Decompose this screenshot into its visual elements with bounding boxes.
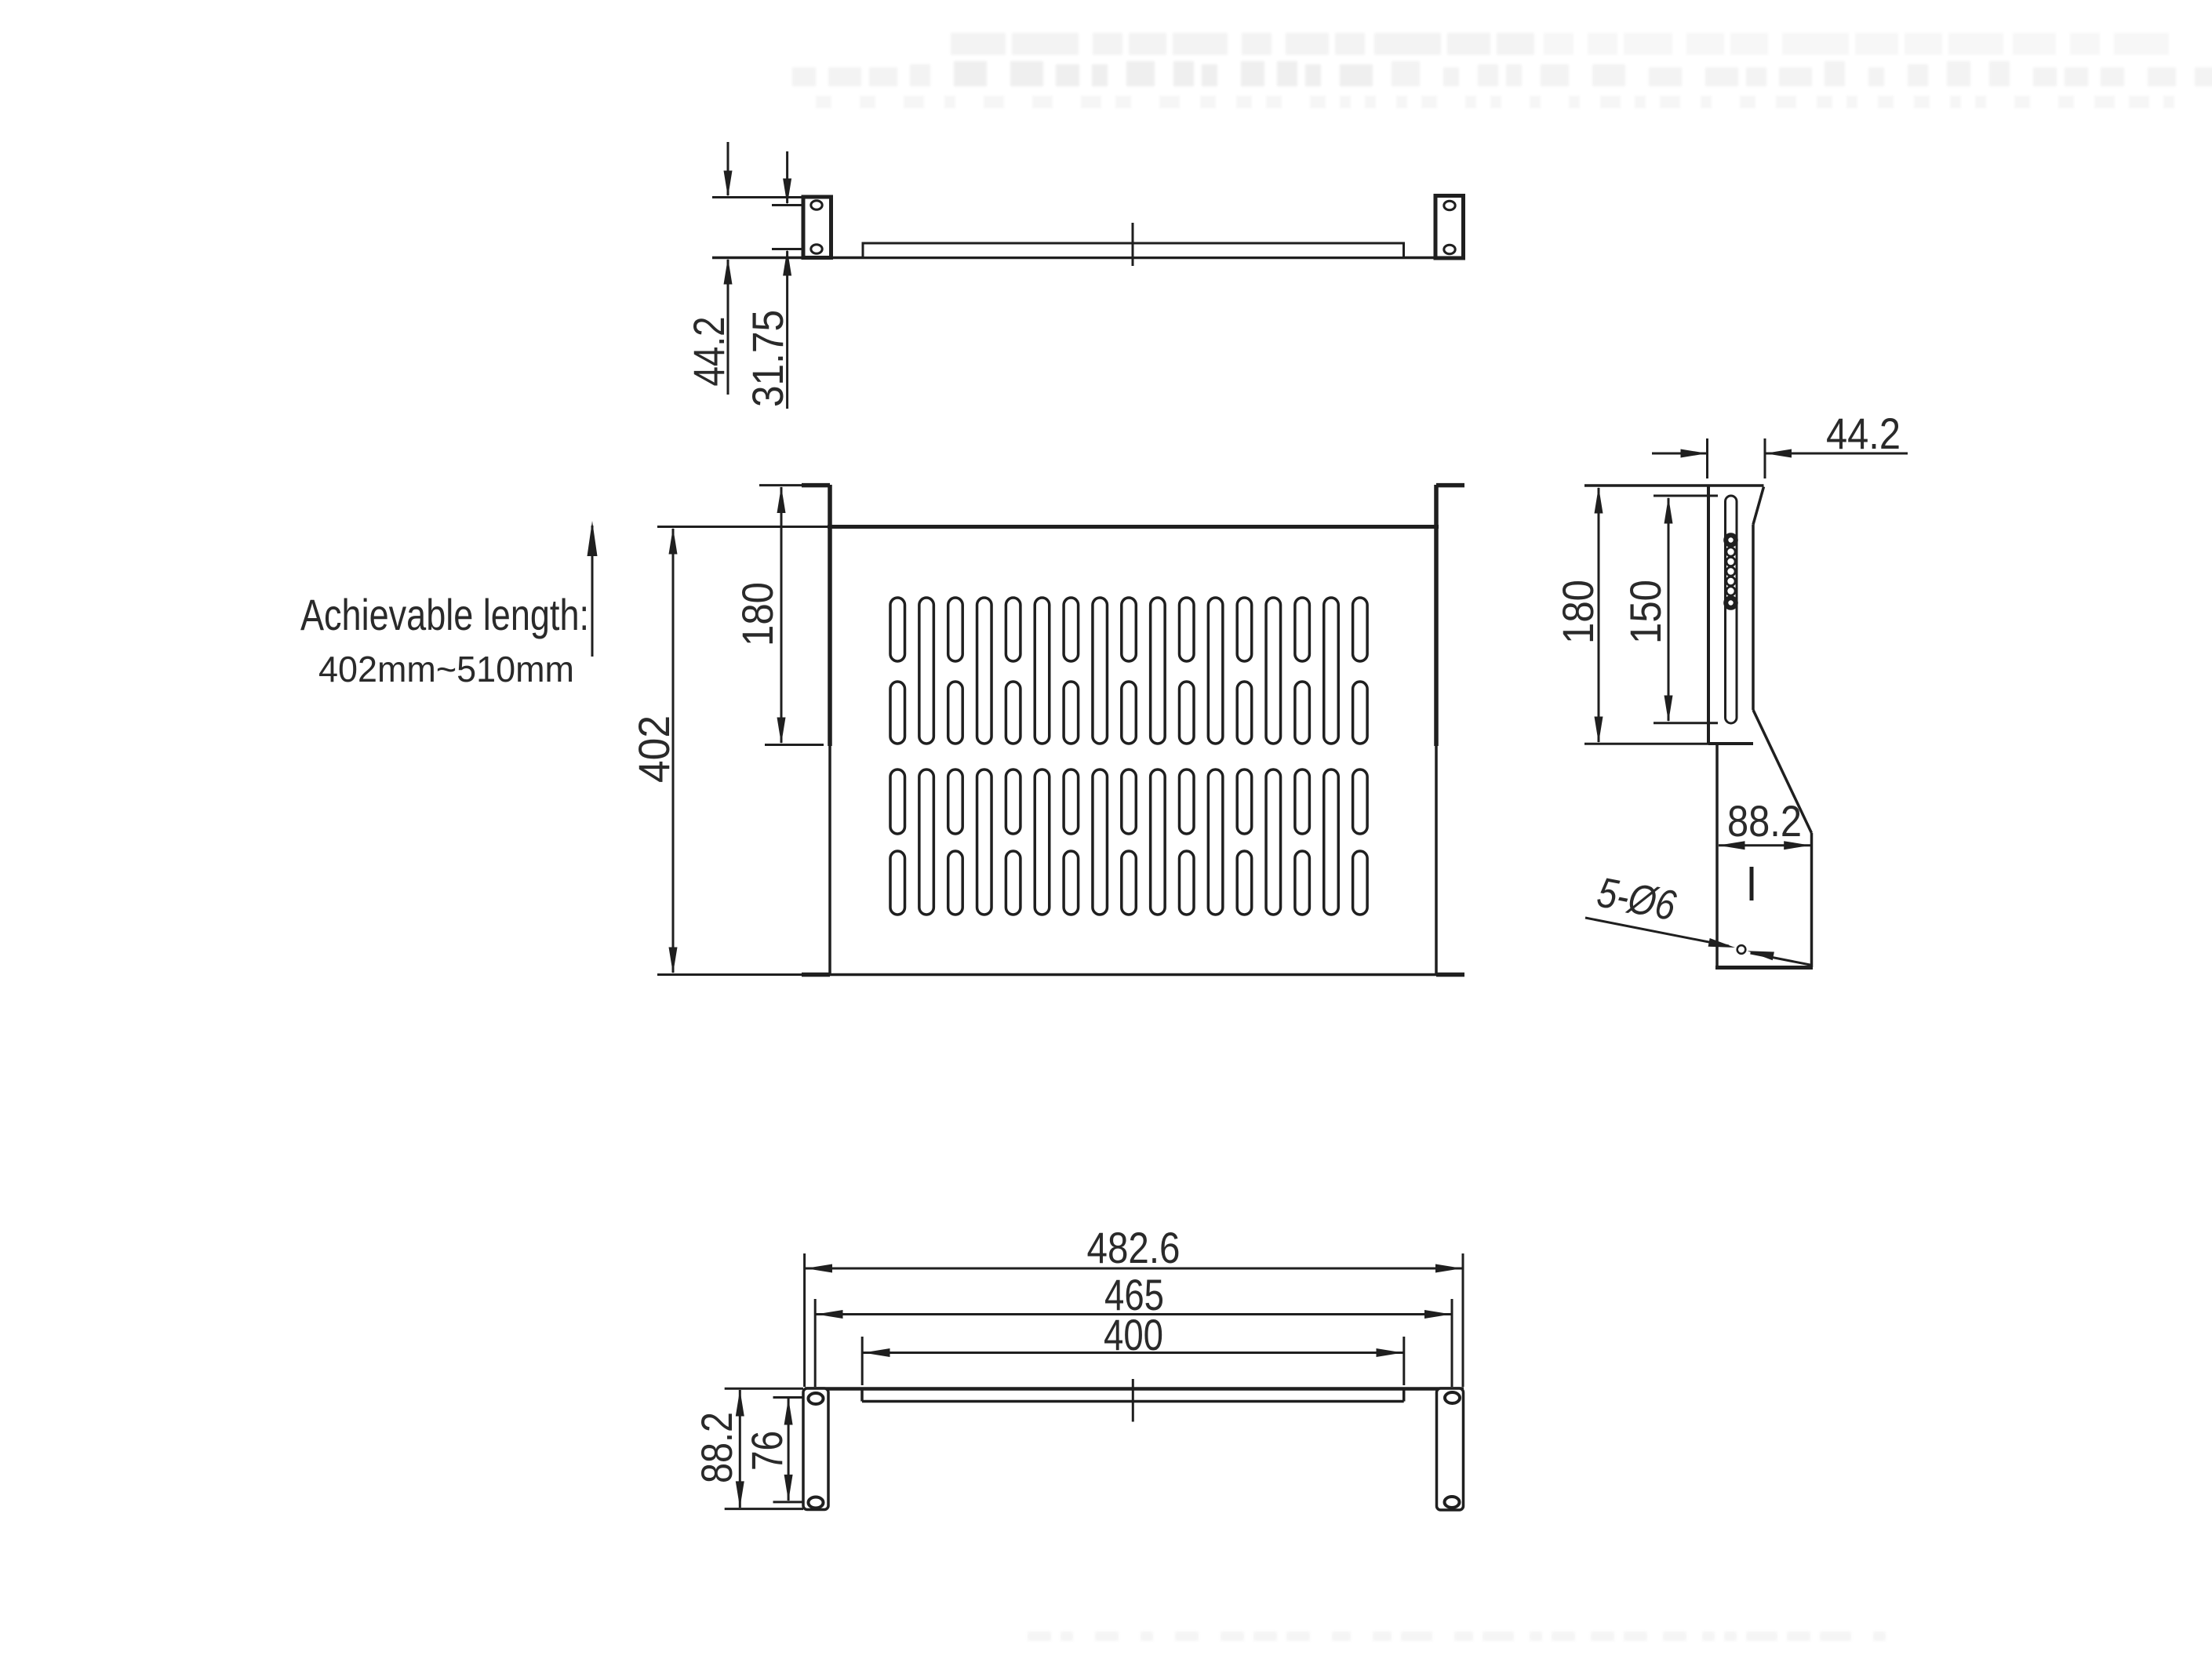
svg-text:482.6: 482.6	[1087, 1223, 1181, 1272]
svg-text:402: 402	[629, 715, 679, 783]
svg-text:44.2: 44.2	[684, 317, 733, 387]
svg-text:76: 76	[742, 1431, 791, 1471]
svg-text:402mm~510mm: 402mm~510mm	[318, 649, 574, 689]
svg-text:88.2: 88.2	[1727, 796, 1802, 846]
svg-text:150: 150	[1621, 580, 1670, 644]
svg-text:Achievable length:: Achievable length:	[300, 590, 589, 639]
svg-text:180: 180	[733, 582, 782, 646]
svg-text:400: 400	[1104, 1310, 1163, 1359]
svg-text:31.75: 31.75	[743, 310, 792, 407]
svg-text:180: 180	[1553, 580, 1603, 644]
svg-text:44.2: 44.2	[1826, 409, 1901, 458]
svg-text:88.2: 88.2	[692, 1412, 741, 1483]
